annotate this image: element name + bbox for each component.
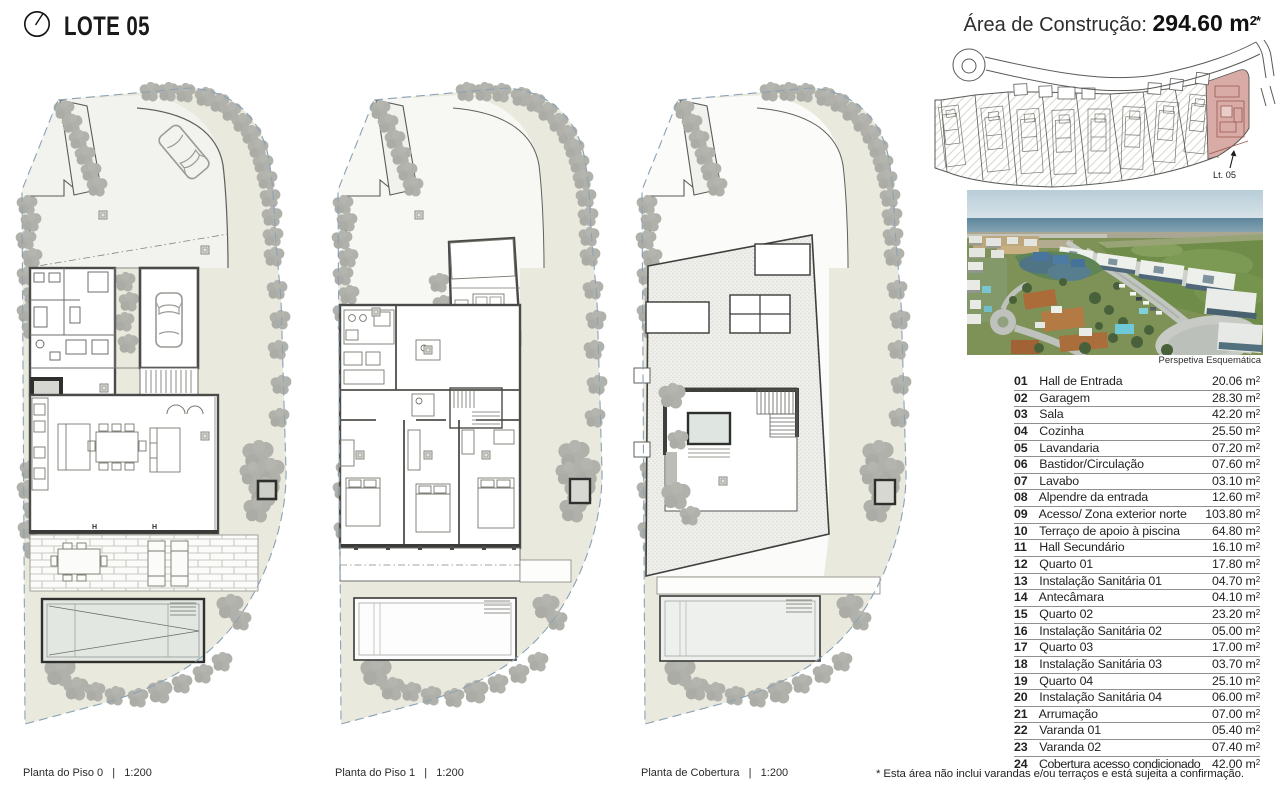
svg-text:H: H xyxy=(152,524,157,531)
svg-text:H: H xyxy=(92,524,97,531)
svg-text:Lt. 05: Lt. 05 xyxy=(1213,170,1236,180)
